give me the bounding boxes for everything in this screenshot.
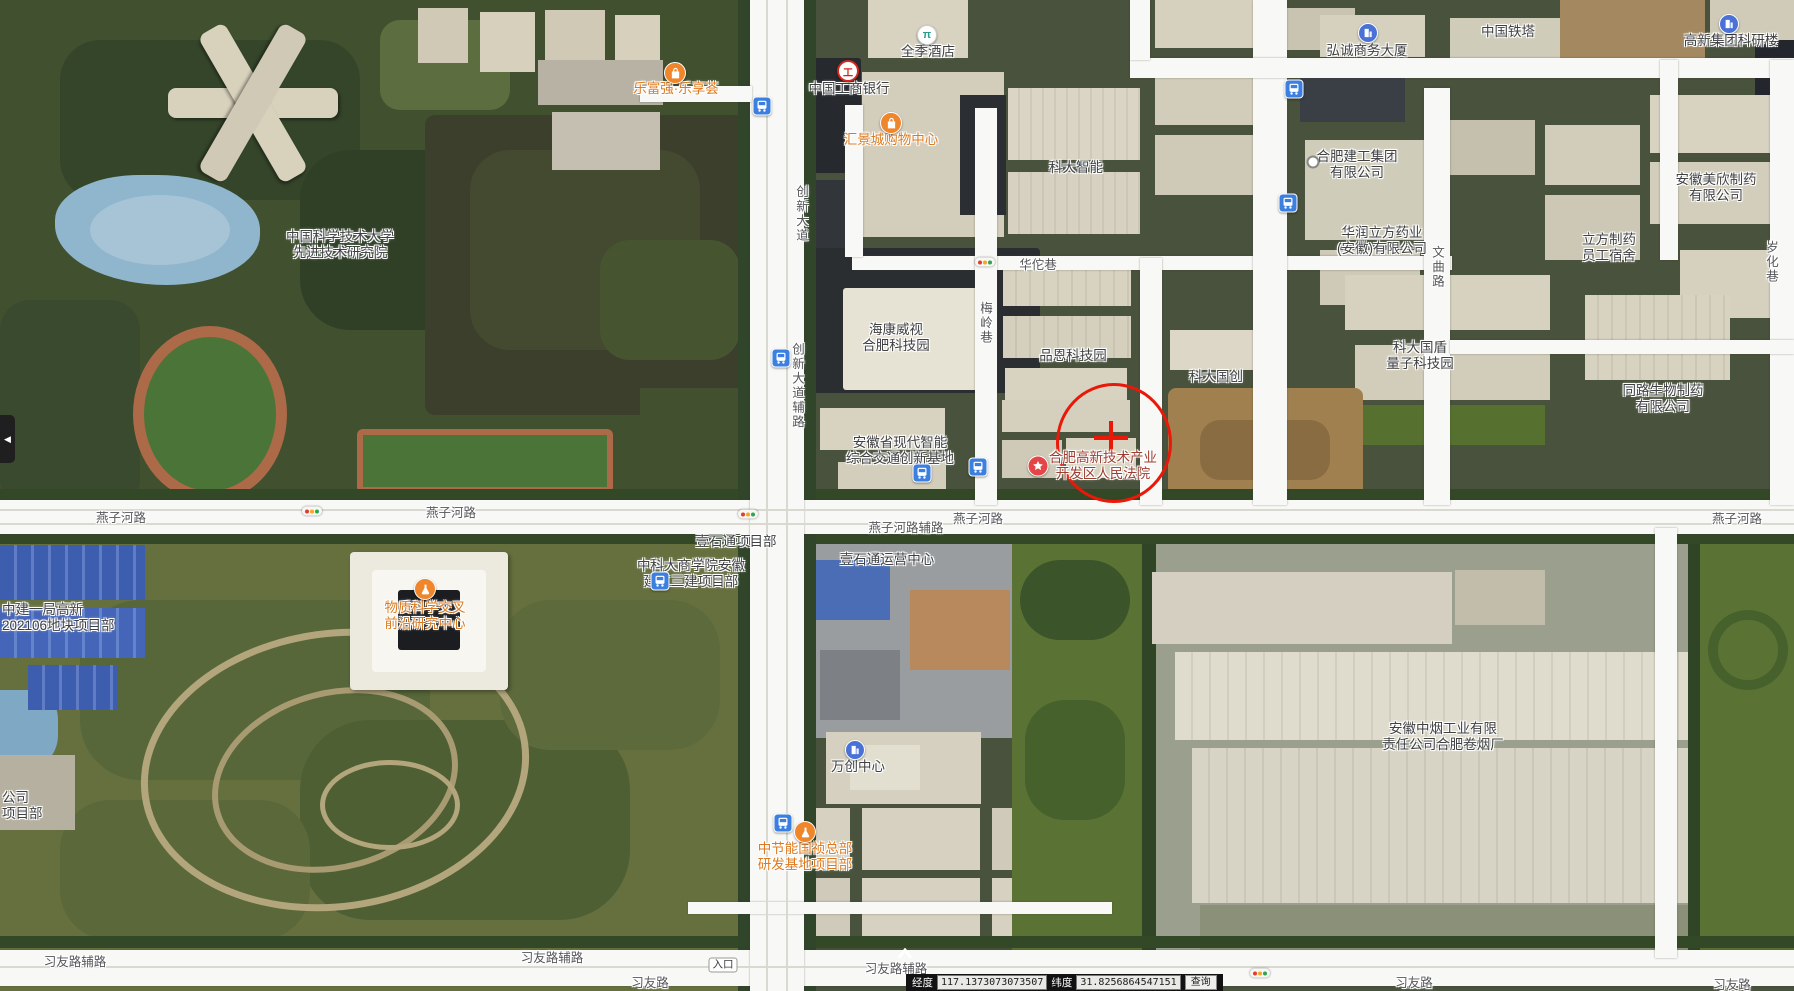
place-label: 合肥高新技术产业开发区人民法院 (1049, 450, 1157, 482)
place-label: 安徽中烟工业有限责任公司合肥卷烟厂 (1382, 721, 1504, 753)
bag-icon[interactable] (664, 62, 686, 84)
road-label: 燕子河路 (426, 505, 476, 521)
latitude-label: 纬度 (1051, 975, 1072, 990)
road-label: 习友路 (1713, 977, 1751, 991)
terrain-patch (640, 388, 740, 498)
place-label: 物质科学交叉前沿研究中心 (385, 600, 466, 632)
terrain-patch (862, 808, 980, 870)
place-label: 科大国创 (1189, 369, 1243, 385)
bldg-icon[interactable] (845, 740, 865, 760)
place-label: 安徽美欣制药有限公司 (1676, 172, 1757, 204)
terrain-patch (0, 489, 1794, 500)
terrain-patch (1445, 120, 1535, 175)
terrain-patch (1152, 572, 1452, 644)
road-label: 文曲路 (1430, 245, 1444, 289)
query-button[interactable]: 查询 (1185, 975, 1217, 990)
terrain-patch (480, 12, 535, 72)
hotel-icon[interactable]: π (917, 25, 937, 45)
lane-marking (0, 509, 1794, 511)
place-label: 弘诚商务大厦 (1327, 43, 1408, 59)
star-icon[interactable] (1028, 456, 1049, 477)
traffic-icon (302, 507, 322, 516)
road-label: 燕子河路 (96, 510, 146, 526)
longitude-label: 经度 (912, 975, 933, 990)
bus-icon[interactable] (753, 97, 772, 116)
terrain-patch (1025, 700, 1125, 820)
coordinate-status-bar: 经度 117.1373073073507 纬度 31.8256864547151… (906, 974, 1223, 991)
terrain-patch (133, 326, 287, 502)
terrain-patch (820, 650, 900, 720)
road-label: 燕子河路 (1712, 511, 1762, 527)
terrain-patch (1020, 560, 1130, 640)
terrain-patch (320, 760, 460, 850)
dot-icon[interactable] (1307, 156, 1320, 169)
place-label: 中节能国祯总部研发基地项目部 (758, 841, 853, 873)
collapse-icon: ◀ (4, 434, 11, 445)
terrain-patch (0, 300, 140, 510)
place-label: 万创中心 (831, 759, 885, 775)
road-segment (688, 902, 1112, 914)
place-label: 中国铁塔 (1481, 24, 1535, 40)
place-label: 同路生物制药有限公司 (1623, 383, 1704, 415)
road-label: 习友路 (631, 975, 669, 991)
terrain-patch (910, 590, 1010, 670)
place-label: 安徽省现代智能综合交通创新基地 (846, 435, 954, 467)
terrain-patch (1008, 88, 1140, 160)
terrain-patch (357, 429, 613, 493)
road-segment (1130, 58, 1794, 78)
road-label: 习友路辅路 (44, 954, 107, 970)
road-label: 岁化巷 (1764, 240, 1778, 284)
satellite-map[interactable]: 中国科学技术大学先进技术研究院乐富强·乐享荟全季酒店中国工商银行汇景城购物中心科… (0, 0, 1794, 991)
road-segment (1655, 528, 1677, 958)
road-segment (1450, 340, 1794, 354)
place-label: 中建一局高新202106地块项目部 (2, 602, 115, 634)
bldg-icon[interactable] (1358, 23, 1378, 43)
terrain-patch (1155, 70, 1255, 125)
terrain-patch (90, 195, 230, 265)
longitude-value[interactable]: 117.1373073073507 (937, 975, 1047, 990)
terrain-patch (28, 665, 118, 710)
road-segment (1130, 0, 1150, 60)
terrain-patch (1585, 295, 1730, 380)
terrain-patch (1192, 748, 1707, 903)
place-label: 品恩科技园 (1039, 348, 1107, 364)
terrain-patch (738, 0, 750, 991)
bus-icon[interactable] (969, 458, 988, 477)
road-label: 燕子河路辅路 (868, 520, 943, 536)
road-segment (845, 105, 863, 257)
road-label: 创新大道 (794, 185, 808, 243)
place-label: 华润立方药业(安徽)有限公司 (1337, 225, 1427, 257)
sidebar-collapse-tab[interactable]: ◀ (0, 415, 15, 463)
place-label: 立方制药员工宿舍 (1582, 232, 1636, 264)
bus-icon[interactable] (1279, 194, 1298, 213)
bank-icon[interactable]: 工 (837, 60, 859, 82)
bldg-icon[interactable] (1719, 14, 1739, 34)
traffic-icon (1250, 969, 1270, 978)
place-label: 科大智能 (1049, 160, 1103, 176)
road-label: 习友路 (1395, 975, 1433, 991)
bus-icon[interactable] (772, 349, 791, 368)
terrain-patch (1170, 330, 1255, 370)
latitude-value[interactable]: 31.8256864547151 (1076, 975, 1180, 990)
place-label: 壹石通运营中心 (840, 552, 935, 568)
place-label: 汇景城购物中心 (844, 132, 939, 148)
terrain-patch (0, 936, 1794, 948)
place-label: 合肥建工集团有限公司 (1317, 149, 1398, 181)
terrain-patch (1455, 570, 1545, 625)
terrain-patch (552, 112, 660, 170)
road-label: 创新大道辅路 (790, 343, 804, 430)
road-wenqu (1424, 88, 1450, 505)
terrain-patch (1700, 528, 1794, 958)
place-label: 海康威视合肥科技园 (862, 322, 930, 354)
flask-icon[interactable] (794, 821, 816, 843)
terrain-patch (1708, 610, 1788, 690)
road-label: 梅岭巷 (978, 301, 992, 345)
bus-icon[interactable] (913, 464, 932, 483)
bus-icon[interactable] (1285, 80, 1304, 99)
bus-icon[interactable] (651, 572, 670, 591)
road-label: 习友路辅路 (521, 950, 584, 966)
annotation-circle (1056, 383, 1172, 503)
bag-icon[interactable] (880, 112, 902, 134)
terrain-patch (1155, 0, 1255, 48)
terrain-patch (600, 240, 740, 360)
terrain-patch (418, 8, 468, 63)
terrain-patch (0, 545, 145, 600)
road-label: 燕子河路 (953, 511, 1003, 527)
traffic-icon (738, 510, 758, 519)
terrain-patch (1008, 172, 1140, 234)
place-label: 全季酒店 (901, 44, 955, 60)
place-label: 壹石通项目部 (696, 534, 777, 550)
place-label: 高新集团科研楼 (1684, 33, 1779, 49)
road-label: 华佗巷 (1019, 257, 1057, 273)
bus-icon[interactable] (774, 814, 793, 833)
terrain-patch (1155, 135, 1255, 195)
place-label: 中国科学技术大学先进技术研究院 (286, 229, 394, 261)
flask-icon[interactable] (414, 578, 436, 600)
traffic-icon (975, 258, 995, 267)
place-label: 中国工商银行 (809, 81, 890, 97)
place-label: 科大国盾量子科技园 (1386, 340, 1454, 372)
terrain-patch (1560, 0, 1705, 58)
road-segment (1660, 60, 1678, 260)
place-label: 公司项目部 (2, 790, 43, 822)
terrain-patch (500, 600, 720, 750)
terrain-patch (1688, 528, 1700, 958)
place-label: 入口 (709, 958, 738, 973)
terrain-patch (1003, 268, 1131, 306)
terrain-patch (1545, 125, 1640, 185)
chevron-icon (897, 948, 913, 960)
